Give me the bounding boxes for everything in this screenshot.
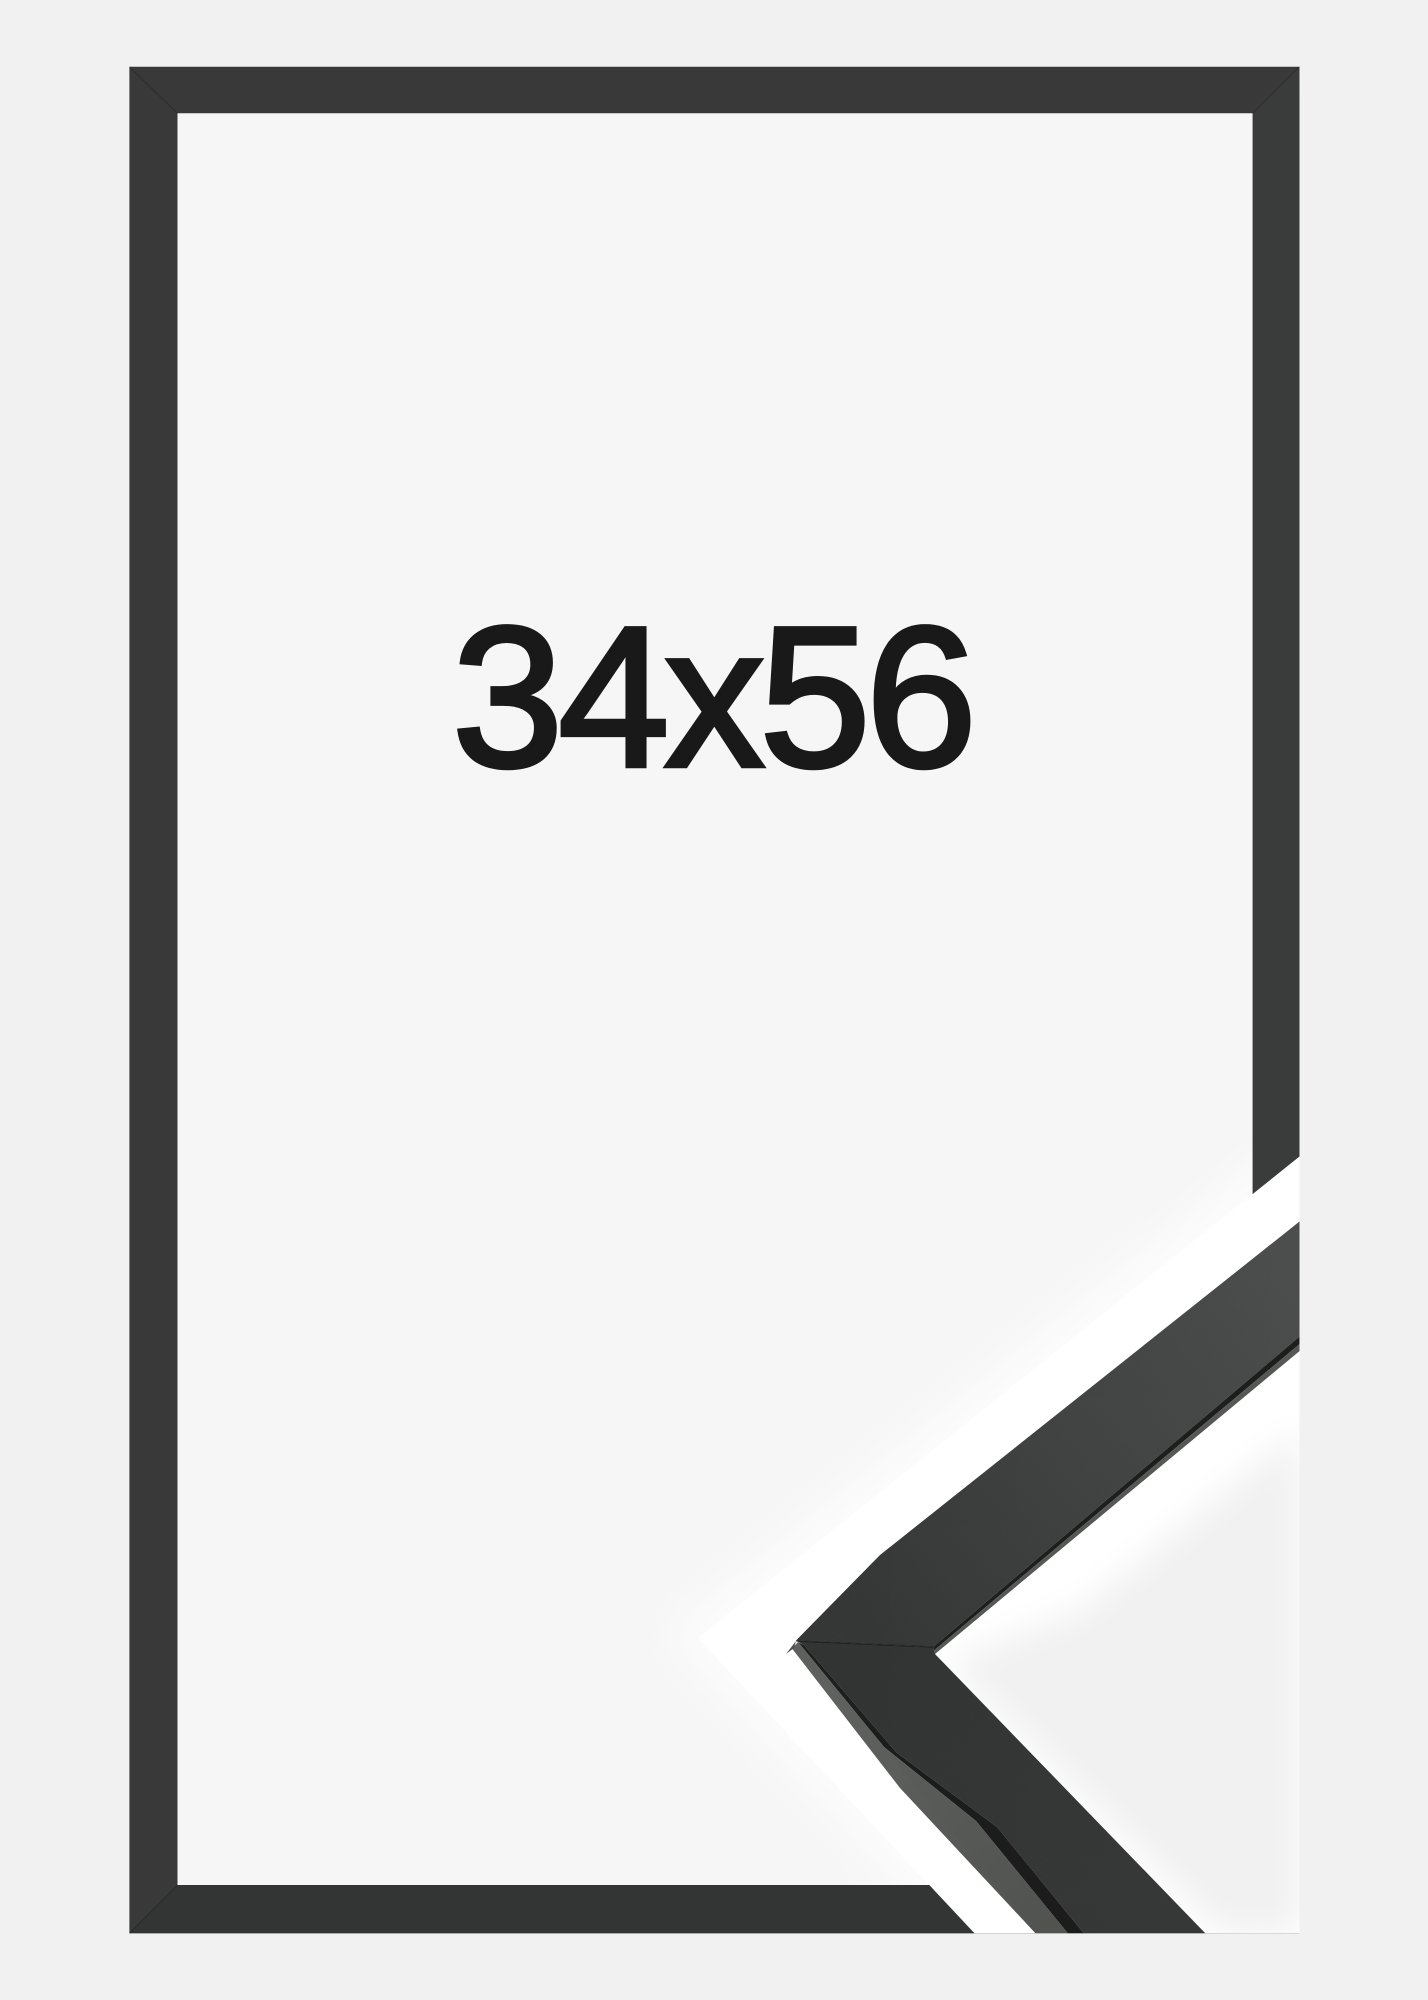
svg-text:34x56: 34x56 <box>452 586 972 809</box>
